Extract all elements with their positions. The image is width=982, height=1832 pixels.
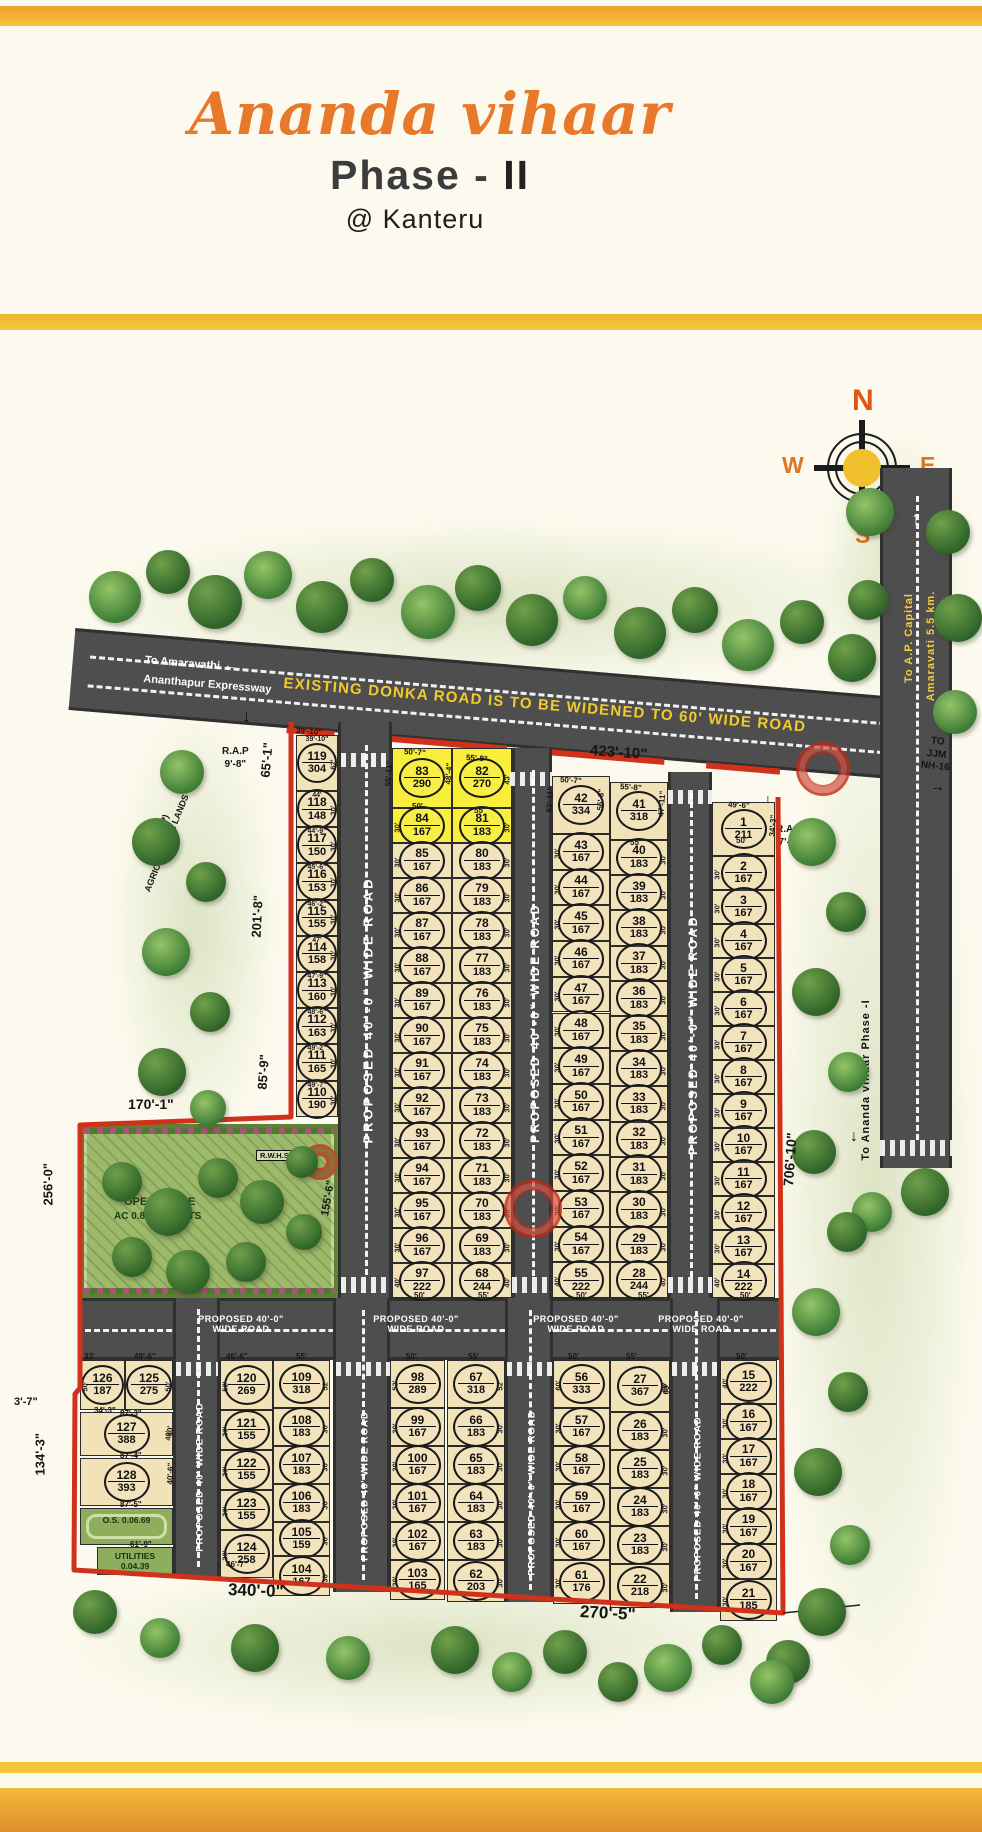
tree-icon: [198, 1158, 238, 1198]
plot-area: 176: [572, 1582, 590, 1595]
plot-width-dim: 49'-7": [308, 1082, 327, 1089]
plot-area: 167: [572, 959, 590, 972]
plot-bubble: 39183: [616, 873, 662, 913]
plot-bubble: 91167: [399, 1051, 445, 1091]
rap-left-note: R.A.P 9'-8": [222, 746, 249, 771]
plot-frontage-dim: 30': [502, 1067, 511, 1077]
dimension-label: 56'-3": [596, 789, 606, 811]
dimension-label: 50'-7": [404, 747, 426, 757]
dimension-label: 40'-6": [166, 1463, 176, 1485]
plot-84: 8416730': [392, 808, 452, 843]
plot-area: 167: [413, 1001, 431, 1014]
dimension-label: 55'-8": [466, 753, 488, 763]
plot-frontage-dim: 30': [713, 1175, 722, 1185]
plot-bubble: 24183: [617, 1487, 663, 1527]
plot-number: 59: [563, 1490, 599, 1504]
plot-frontage-dim: 30': [553, 1062, 562, 1072]
plot-area: 183: [473, 1106, 491, 1119]
tree-icon: [828, 1372, 868, 1412]
road-name-label: PROPOSED 40'-0" WIDE ROAD: [693, 1416, 704, 1581]
plot-area: 163: [308, 1027, 326, 1040]
dimension-label: 3'-7": [14, 1396, 38, 1408]
plot-bubble: 57167: [559, 1407, 605, 1447]
plot-frontage-dim: 40': [553, 1277, 562, 1287]
plot-area: 304: [308, 763, 326, 776]
plot-bubble: 36183: [616, 978, 662, 1018]
plot-49: 4916730': [552, 1048, 610, 1084]
plot-frontage-dim: 30': [658, 854, 667, 864]
plot-bubble: 82270: [459, 758, 505, 798]
plot-area: 275: [140, 1385, 158, 1398]
plot-frontage-dim: 30': [721, 1418, 730, 1428]
plot-area: 190: [308, 1099, 326, 1112]
plot-88: 8816730': [392, 948, 452, 983]
plot-number: 84: [404, 812, 440, 826]
plot-frontage-dim: 30': [660, 1503, 669, 1513]
plot-32: 3218330': [610, 1122, 668, 1157]
plot-bubble: 29183: [616, 1225, 662, 1265]
plot-bubble: 74183: [459, 1051, 505, 1091]
plot-area: 218: [631, 1586, 649, 1599]
plot-frontage-dim: 62': [328, 759, 337, 769]
plot-15: 1522240': [720, 1360, 777, 1404]
plot-bubble: 60167: [559, 1521, 605, 1561]
plot-frontage-dim: 30': [328, 950, 337, 960]
plot-bubble: 44167: [558, 868, 604, 908]
plot-area: 183: [630, 964, 648, 977]
plot-number: 83: [404, 765, 440, 779]
plot-area: 167: [572, 995, 590, 1008]
expressway-line1: To Amaravathi: [145, 654, 221, 672]
plot-area: 183: [473, 861, 491, 874]
plot-31: 3118330': [610, 1157, 668, 1192]
plot-area: 167: [292, 1576, 310, 1589]
os-label: O.S. 0.06.69: [81, 1515, 172, 1525]
plot-area: 183: [467, 1427, 485, 1440]
proposed-road: PROPOSED 40' WIDE ROAD: [173, 1298, 220, 1578]
plot-78: 7818330': [452, 913, 512, 948]
plot-bubble: 38183: [616, 908, 662, 948]
plot-39: 3918330': [610, 875, 668, 910]
plot-120: 12026952': [220, 1360, 273, 1410]
plot-65: 6518330': [447, 1446, 505, 1484]
tree-icon: [244, 551, 292, 599]
tree-icon: [102, 1162, 142, 1202]
plot-bubble: 100167: [395, 1445, 441, 1485]
plot-frontage-dim: 30': [502, 962, 511, 972]
plot-number: 85: [404, 847, 440, 861]
plot-35: 3518330': [610, 1016, 668, 1051]
tree-icon: [326, 1636, 370, 1680]
plot-bubble: 17167: [726, 1437, 772, 1477]
plot-area: 167: [734, 907, 752, 920]
plot-number: 47: [563, 982, 599, 996]
plot-43: 4316730': [552, 834, 610, 870]
plot-23: 2318330': [610, 1526, 670, 1564]
plot-frontage-dim: 30': [660, 1541, 669, 1551]
tree-icon: [231, 1624, 279, 1672]
plot-area: 155: [237, 1510, 255, 1523]
crosswalk-stripes: [668, 790, 712, 804]
plot-frontage-dim: 30': [658, 1171, 667, 1181]
plot-frontage-dim: 30': [713, 1005, 722, 1015]
dimension-label: 46'-7": [226, 1560, 248, 1569]
tree-icon: [89, 571, 141, 623]
plot-bubble: 52167: [558, 1153, 604, 1193]
plot-area: 183: [467, 1465, 485, 1478]
plot-bubble: 45167: [558, 903, 604, 943]
plot-area: 183: [473, 1071, 491, 1084]
plot-92: 9216730': [392, 1088, 452, 1123]
tree-icon: [431, 1626, 479, 1674]
plot-bubble: 79183: [459, 876, 505, 916]
plot-27: 2736760': [610, 1360, 670, 1412]
plot-9: 916730': [712, 1094, 775, 1128]
plot-frontage-dim: 30': [393, 962, 402, 972]
dimension-label: 423'-10": [589, 742, 647, 763]
tree-icon: [830, 1525, 870, 1565]
plot-frontage-dim: 30': [553, 1098, 562, 1108]
plot-86: 8616730': [392, 878, 452, 913]
plot-area: 167: [572, 1427, 590, 1440]
plot-frontage-dim: 30': [502, 1172, 511, 1182]
proposed-road: PROPOSED 40'-0" WIDE ROAD: [505, 1298, 553, 1602]
plot-62: 6220330': [447, 1560, 505, 1602]
plot-number: 18: [730, 1478, 766, 1492]
plot-number: 1: [725, 816, 761, 830]
plot-area: 167: [408, 1541, 426, 1554]
plot-number: 62: [458, 1568, 494, 1582]
plot-bubble: 77183: [459, 946, 505, 986]
plot-number: 55: [563, 1267, 599, 1281]
plot-67: 6731852': [447, 1360, 505, 1408]
utilities-label: UTILITIES 0.04.39: [98, 1551, 172, 1571]
plot-number: 104: [283, 1563, 319, 1577]
plot-103: 10316530': [390, 1560, 445, 1600]
plot-area: 183: [630, 1175, 648, 1188]
plot-bubble: 75183: [459, 1016, 505, 1056]
plot-area: 155: [237, 1470, 255, 1483]
plot-area: 183: [630, 1140, 648, 1153]
plot-106: 10618330': [273, 1484, 330, 1522]
plot-128: 128393: [80, 1458, 173, 1506]
plot-area: 183: [473, 826, 491, 839]
dimension-label: 170'-1": [128, 1096, 174, 1112]
plot-number: 57: [563, 1414, 599, 1428]
plot-frontage-dim: 40': [721, 1378, 730, 1388]
plot-number: 4: [725, 928, 761, 942]
crosswalk-stripes: [176, 1362, 218, 1376]
tree-icon: [286, 1146, 318, 1178]
plot-bubble: 64183: [453, 1483, 499, 1523]
plot-bubble: 103165: [395, 1560, 441, 1600]
plot-area: 167: [413, 1246, 431, 1259]
plot-area: 167: [734, 1043, 752, 1056]
dimension-label: 55': [478, 1291, 489, 1300]
plot-frontage-dim: 30': [393, 997, 402, 1007]
plot-105: 10515930': [273, 1522, 330, 1556]
plot-29: 2918330': [610, 1227, 668, 1262]
plot-121: 12115530': [220, 1410, 273, 1450]
plot-number: 54: [563, 1231, 599, 1245]
plot-width-dim: 47'-9": [308, 973, 327, 980]
plot-frontage-dim: 30': [553, 1134, 562, 1144]
capital-label-1: To A.P. Capital: [903, 593, 915, 683]
plot-127: 12738840': [80, 1412, 173, 1456]
plot-22: 2221830': [610, 1564, 670, 1608]
dimension-label: 134'-3": [33, 1433, 48, 1476]
plot-bubble: 83290: [399, 758, 445, 798]
plot-number: 25: [622, 1456, 658, 1470]
plot-frontage-dim: 30': [660, 1427, 669, 1437]
plot-frontage-dim: 40': [713, 1277, 722, 1287]
plot-17: 1716730': [720, 1439, 777, 1474]
plot-bubble: 108183: [279, 1407, 325, 1447]
tree-icon: [792, 968, 840, 1016]
up-arrow-icon: ↑: [911, 508, 921, 531]
plot-frontage-dim: 30': [393, 1172, 402, 1182]
down-arrow-icon: ↓: [242, 706, 251, 727]
plot-122: 12215530': [220, 1450, 273, 1490]
approval-seal-icon: [796, 742, 850, 796]
tree-icon: [160, 750, 204, 794]
plot-area: 393: [117, 1482, 135, 1495]
tree-icon: [828, 1052, 868, 1092]
plot-number: 30: [621, 1196, 657, 1210]
plot-bubble: 106183: [279, 1483, 325, 1523]
plot-number: 28: [621, 1267, 657, 1281]
util-line1: UTILITIES: [115, 1551, 155, 1561]
plot-number: 60: [563, 1528, 599, 1542]
plot-area: 222: [739, 1382, 757, 1395]
plot-bubble: 33183: [616, 1084, 662, 1124]
plot-bubble: 48167: [558, 1010, 604, 1050]
plot-10: 1016730': [712, 1128, 775, 1162]
plot-number: 27: [622, 1373, 658, 1387]
plot-area: 167: [413, 1211, 431, 1224]
plot-93: 9316730': [392, 1123, 452, 1158]
tree-icon: [186, 862, 226, 902]
plot-frontage-dim: 30': [502, 927, 511, 937]
plot-number: 107: [283, 1452, 319, 1466]
tree-icon: [827, 1212, 867, 1252]
tree-icon: [543, 1630, 587, 1674]
plot-area: 183: [630, 1034, 648, 1047]
plot-60: 6016730': [553, 1522, 610, 1560]
plot-number: 77: [464, 952, 500, 966]
plot-4: 416730': [712, 924, 775, 958]
plot-frontage-dim: 30': [502, 892, 511, 902]
plot-area: 167: [572, 888, 590, 901]
plot-number: 21: [730, 1587, 766, 1601]
plot-number: 35: [621, 1020, 657, 1034]
plot-112: 11216330'48'-6": [296, 1008, 338, 1044]
plot-number: 102: [399, 1528, 435, 1542]
dimension-label: 50': [412, 802, 423, 811]
plot-area: 183: [473, 1036, 491, 1049]
plot-number: 2: [725, 860, 761, 874]
road-name-label: PROPOSED 40'-0" WIDE ROAD: [527, 1410, 538, 1575]
plot-frontage-dim: 30': [393, 892, 402, 902]
road-name-label: PROPOSED 40'-0" WIDE ROAD: [361, 876, 376, 1143]
dimension-label: 50': [740, 1291, 751, 1300]
plot-number: 125: [131, 1372, 167, 1386]
plot-bubble: 92167: [399, 1086, 445, 1126]
dimension-label: 50': [568, 1352, 579, 1361]
plot-number: 65: [458, 1452, 494, 1466]
plot-96: 9616730': [392, 1228, 452, 1263]
dimension-label: 50': [736, 1352, 747, 1361]
tree-icon: [142, 928, 190, 976]
plot-area: 318: [292, 1384, 310, 1397]
plot-area: 185: [739, 1600, 757, 1613]
plot-frontage-dim: 30': [391, 1576, 400, 1586]
plot-75: 7518330': [452, 1018, 512, 1053]
down-arrow-icon: ↓: [850, 1128, 858, 1146]
plot-bubble: 98289: [395, 1364, 441, 1404]
dimension-label: 55': [474, 806, 485, 815]
plot-70: 7018330': [452, 1193, 512, 1228]
plot-frontage-dim: 30': [502, 857, 511, 867]
plot-frontage-dim: 30': [502, 997, 511, 1007]
plot-number: 37: [621, 950, 657, 964]
plot-number: 66: [458, 1414, 494, 1428]
plot-bubble: 93167: [399, 1121, 445, 1161]
plot-area: 183: [630, 999, 648, 1012]
plot-number: 96: [404, 1232, 440, 1246]
plot-frontage-dim: 40': [658, 1276, 667, 1286]
dimension-label: 55': [630, 838, 641, 847]
plot-number: 74: [464, 1057, 500, 1071]
plot-area: 167: [572, 1245, 590, 1258]
plot-area: 183: [631, 1507, 649, 1520]
plot-area: 269: [237, 1385, 255, 1398]
plot-bubble: 58167: [559, 1445, 605, 1485]
plot-area: 183: [292, 1427, 310, 1440]
plot-number: 89: [404, 987, 440, 1001]
plot-number: 6: [725, 996, 761, 1010]
plot-36: 3618330': [610, 981, 668, 1016]
plot-area: 167: [734, 873, 752, 886]
compass-north: N: [852, 384, 874, 418]
plot-bubble: 69183: [459, 1226, 505, 1266]
top-stripe: [0, 6, 982, 26]
plot-number: 68: [464, 1267, 500, 1281]
tree-icon: [780, 600, 824, 644]
plot-number: 88: [404, 952, 440, 966]
plot-bubble: 128393: [104, 1462, 150, 1502]
plot-54: 5416730': [552, 1227, 610, 1263]
plot-frontage-dim: 30': [713, 1073, 722, 1083]
flower-hedge: [84, 1128, 334, 1134]
plot-number: 94: [404, 1162, 440, 1176]
plot-bubble: 95167: [399, 1191, 445, 1231]
plot-frontage-dim: 30': [393, 1067, 402, 1077]
plot-area: 167: [572, 1174, 590, 1187]
plot-bubble: 49167: [558, 1046, 604, 1086]
dimension-label: 55': [468, 1352, 479, 1361]
plot-number: 50: [563, 1089, 599, 1103]
plot-number: 58: [563, 1452, 599, 1466]
plot-frontage-dim: 30': [554, 1461, 563, 1471]
crosswalk-stripes: [668, 1277, 712, 1293]
rap-left-line1: R.A.P: [222, 746, 249, 757]
plot-bubble: 23183: [617, 1525, 663, 1565]
plot-number: 122: [228, 1457, 264, 1471]
plot-51: 5116730': [552, 1120, 610, 1156]
plot-bubble: 86167: [399, 876, 445, 916]
plot-number: 123: [228, 1497, 264, 1511]
plot-frontage-dim: 40': [393, 1277, 402, 1287]
plot-area: 167: [572, 1138, 590, 1151]
plot-16: 1616730': [720, 1404, 777, 1439]
plot-frontage-dim: 30': [554, 1499, 563, 1509]
plot-6: 616730': [712, 992, 775, 1026]
dimension-label: 50': [406, 1352, 417, 1361]
plot-number: 15: [730, 1369, 766, 1383]
plot-area: 167: [572, 1031, 590, 1044]
crosswalk-stripes: [510, 772, 552, 786]
plot-bubble: 105159: [279, 1519, 325, 1559]
plot-frontage-dim: 52': [320, 1380, 329, 1390]
tree-icon: [190, 1090, 226, 1126]
plot-area: 183: [630, 1245, 648, 1258]
plot-bubble: 54167: [558, 1225, 604, 1265]
plot-number: 10: [725, 1132, 761, 1146]
dimension-label: 55': [638, 1291, 649, 1300]
plot-area: 388: [117, 1434, 135, 1447]
tree-icon: [828, 634, 876, 682]
plot-95: 9516730': [392, 1193, 452, 1228]
dimension-label: 50': [736, 836, 747, 845]
plot-frontage-dim: 30': [713, 1039, 722, 1049]
plot-frontage-dim: 30': [658, 1100, 667, 1110]
tree-icon: [750, 1660, 794, 1704]
tree-icon: [702, 1625, 742, 1665]
plot-frontage-dim: 50': [81, 1381, 90, 1391]
nh16-line2: JJM: [926, 748, 946, 761]
plot-area: 165: [308, 1063, 326, 1076]
plot-frontage-dim: 30': [393, 1242, 402, 1252]
plot-frontage-dim: 40': [502, 1277, 511, 1287]
dimension-label: 48'-4": [444, 763, 454, 785]
plot-area: 183: [473, 1211, 491, 1224]
tree-icon: [401, 585, 455, 639]
plot-bubble: 22218: [617, 1566, 663, 1606]
plot-number: 36: [621, 985, 657, 999]
plot-frontage-dim: 30': [658, 924, 667, 934]
plot-bubble: 61176: [559, 1562, 605, 1602]
dimension-label: 60': [662, 1383, 672, 1394]
plot-123: 12315530': [220, 1490, 273, 1530]
plot-50: 5016730': [552, 1084, 610, 1120]
plot-109: 10931852': [273, 1360, 330, 1408]
plot-frontage-dim: 30': [495, 1461, 504, 1471]
plot-frontage-dim: 30': [393, 1032, 402, 1042]
tree-icon: [146, 550, 190, 594]
plot-area: 183: [292, 1503, 310, 1516]
plot-bubble: 53167: [558, 1189, 604, 1229]
plot-area: 183: [473, 966, 491, 979]
plot-56: 5633360': [553, 1360, 610, 1408]
plot-bubble: 102167: [395, 1521, 441, 1561]
plot-frontage-dim: 30': [320, 1535, 329, 1545]
plot-24: 2418330': [610, 1488, 670, 1526]
plot-bubble: 25183: [617, 1449, 663, 1489]
plot-number: 13: [725, 1234, 761, 1248]
phase-text: Phase -: [330, 152, 490, 198]
plot-frontage-dim: 30': [658, 1241, 667, 1251]
